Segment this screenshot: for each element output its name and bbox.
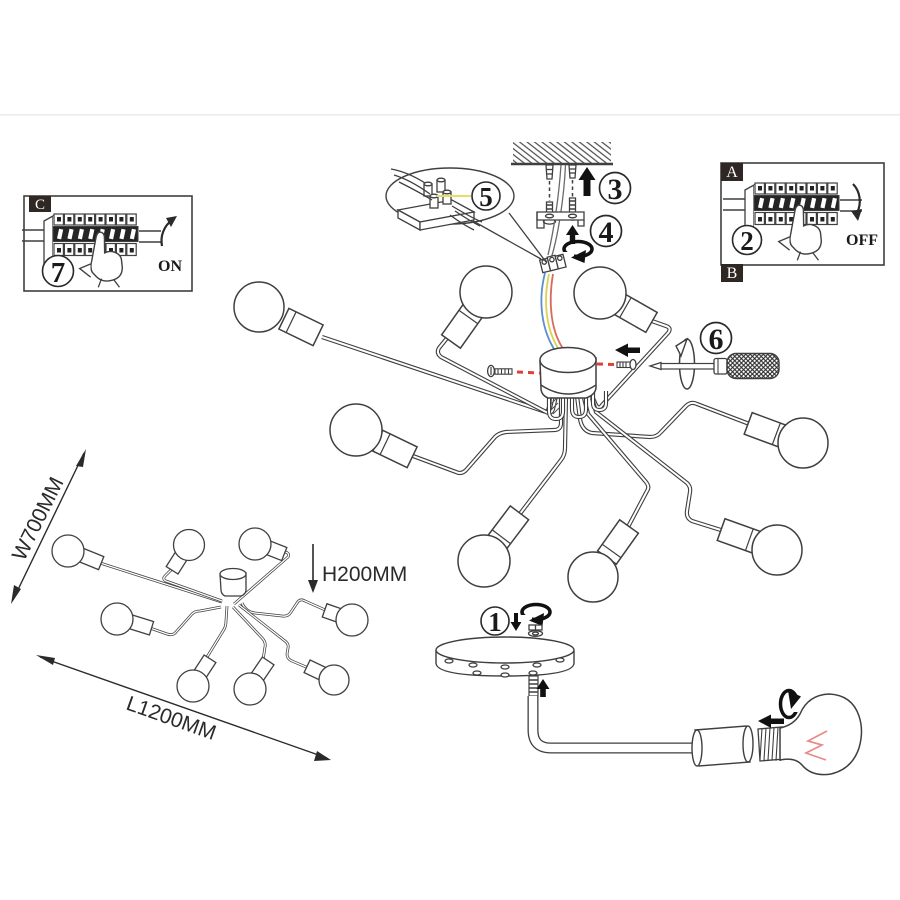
- svg-text:6: 6: [709, 323, 724, 356]
- svg-text:OFF: OFF: [846, 232, 878, 249]
- svg-text:7: 7: [51, 257, 66, 289]
- svg-text:L1200MM: L1200MM: [123, 692, 219, 745]
- svg-text:3: 3: [608, 173, 623, 206]
- svg-text:H200MM: H200MM: [322, 563, 407, 586]
- svg-text:ON: ON: [158, 258, 182, 275]
- svg-text:5: 5: [479, 182, 493, 212]
- svg-text:B: B: [727, 265, 738, 282]
- svg-text:2: 2: [740, 226, 754, 256]
- svg-text:A: A: [726, 164, 738, 181]
- svg-text:C: C: [35, 197, 45, 213]
- svg-text:4: 4: [599, 216, 614, 249]
- svg-text:1: 1: [488, 607, 502, 637]
